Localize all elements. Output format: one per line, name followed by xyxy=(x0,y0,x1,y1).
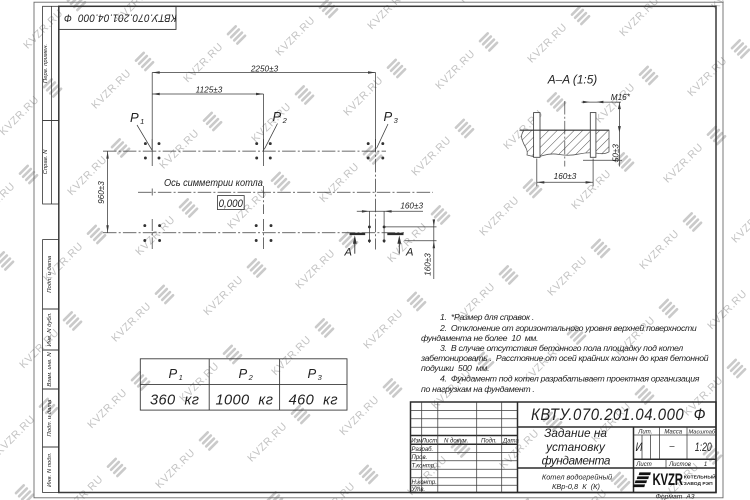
svg-text:1000 кг: 1000 кг xyxy=(215,393,273,409)
svg-text:160±3: 160±3 xyxy=(554,172,577,181)
svg-text:1: 1 xyxy=(704,462,707,468)
svg-text:ЗАВОД РЭП: ЗАВОД РЭП xyxy=(684,481,713,487)
svg-text:Подп. и дата: Подп. и дата xyxy=(47,255,53,293)
svg-text:КВТУ.070.201.04.000 Ф: КВТУ.070.201.04.000 Ф xyxy=(64,11,177,24)
svg-text:1. *Размер для справок .: 1. *Размер для справок . xyxy=(440,312,534,322)
svg-text:подушки 500 мм.: подушки 500 мм. xyxy=(421,363,489,373)
svg-text:Подп. и дата: Подп. и дата xyxy=(47,399,53,437)
svg-text:2. Отклонение от горизонтальн: 2. Отклонение от горизонтального уровня … xyxy=(439,323,697,333)
svg-text:160±3: 160±3 xyxy=(424,253,433,276)
svg-text:N докум.: N докум. xyxy=(444,438,468,444)
svg-text:Инв. N подл.: Инв. N подл. xyxy=(47,452,53,486)
svg-text:Перв. примен.: Перв. примен. xyxy=(43,44,49,83)
svg-text:Взам. инв. N: Взам. инв. N xyxy=(47,352,53,387)
svg-text:3. В случае отсутствия бетонн: 3. В случае отсутствия бетонного пола пл… xyxy=(440,343,683,353)
svg-text:160±3: 160±3 xyxy=(400,201,423,210)
svg-text:2250±3: 2250±3 xyxy=(250,65,279,74)
svg-text:Подп.: Подп. xyxy=(481,438,497,444)
svg-text:КВр-0,8 К (К): КВр-0,8 К (К) xyxy=(552,482,601,491)
svg-text:4. Фундамент под котел разраб: 4. Фундамент под котел разрабатывает про… xyxy=(440,374,700,384)
svg-text:по нагрузкам на фундамент .: по нагрузкам на фундамент . xyxy=(421,384,535,394)
svg-text:1:20: 1:20 xyxy=(695,442,712,455)
svg-text:Справ. N: Справ. N xyxy=(43,149,49,174)
svg-text:Инв. N дубл.: Инв. N дубл. xyxy=(47,312,53,346)
svg-text:50±3: 50±3 xyxy=(612,144,621,163)
svg-text:Масштаб: Масштаб xyxy=(689,430,716,436)
svg-text:фундамента: фундамента xyxy=(542,454,611,468)
svg-text:КВТУ.070.201.04.000 Ф: КВТУ.070.201.04.000 Ф xyxy=(531,406,706,424)
svg-text:A: A xyxy=(405,246,413,258)
svg-text:установку: установку xyxy=(545,440,606,454)
svg-text:Утв.: Утв. xyxy=(411,487,426,493)
svg-text:Лист: Лист xyxy=(635,462,651,468)
svg-text:Листов: Листов xyxy=(668,462,691,468)
svg-text:960±3: 960±3 xyxy=(97,181,106,204)
svg-text:360 кг: 360 кг xyxy=(150,393,199,409)
svg-text:Ось симметрии котла: Ось симметрии котла xyxy=(164,178,263,190)
svg-text:Дата: Дата xyxy=(502,438,519,444)
svg-text:KVZR: KVZR xyxy=(653,471,684,490)
svg-text:A–A (1:5): A–A (1:5) xyxy=(547,73,597,87)
svg-text:–: – xyxy=(668,440,675,450)
svg-text:Н.контр.: Н.контр. xyxy=(412,480,437,486)
svg-text:M16*: M16* xyxy=(611,93,631,103)
svg-text:Т.контр.: Т.контр. xyxy=(412,464,436,470)
svg-text:Задание на: Задание на xyxy=(544,426,607,440)
svg-text:Котел водогрейный: Котел водогрейный xyxy=(542,473,612,482)
svg-text:Изм: Изм xyxy=(411,438,422,444)
svg-text:Разраб.: Разраб. xyxy=(412,447,434,453)
svg-text:фундамента не более 10 мм.: фундамента не более 10 мм. xyxy=(421,333,538,343)
svg-text:Формат А3: Формат А3 xyxy=(655,494,694,500)
svg-text:0,000: 0,000 xyxy=(219,199,244,211)
svg-text:460 кг: 460 кг xyxy=(289,393,338,409)
svg-text:И: И xyxy=(636,441,643,454)
svg-text:A: A xyxy=(344,246,352,258)
svg-text:забетонировать . Расстояние о: забетонировать . Расстояние от осей край… xyxy=(420,353,709,363)
svg-text:Пров.: Пров. xyxy=(412,455,428,461)
svg-text:Лист: Лист xyxy=(421,438,437,444)
svg-text:Масса: Масса xyxy=(664,430,682,436)
svg-text:1125±3: 1125±3 xyxy=(196,85,223,94)
svg-text:Лит.: Лит. xyxy=(637,430,652,436)
